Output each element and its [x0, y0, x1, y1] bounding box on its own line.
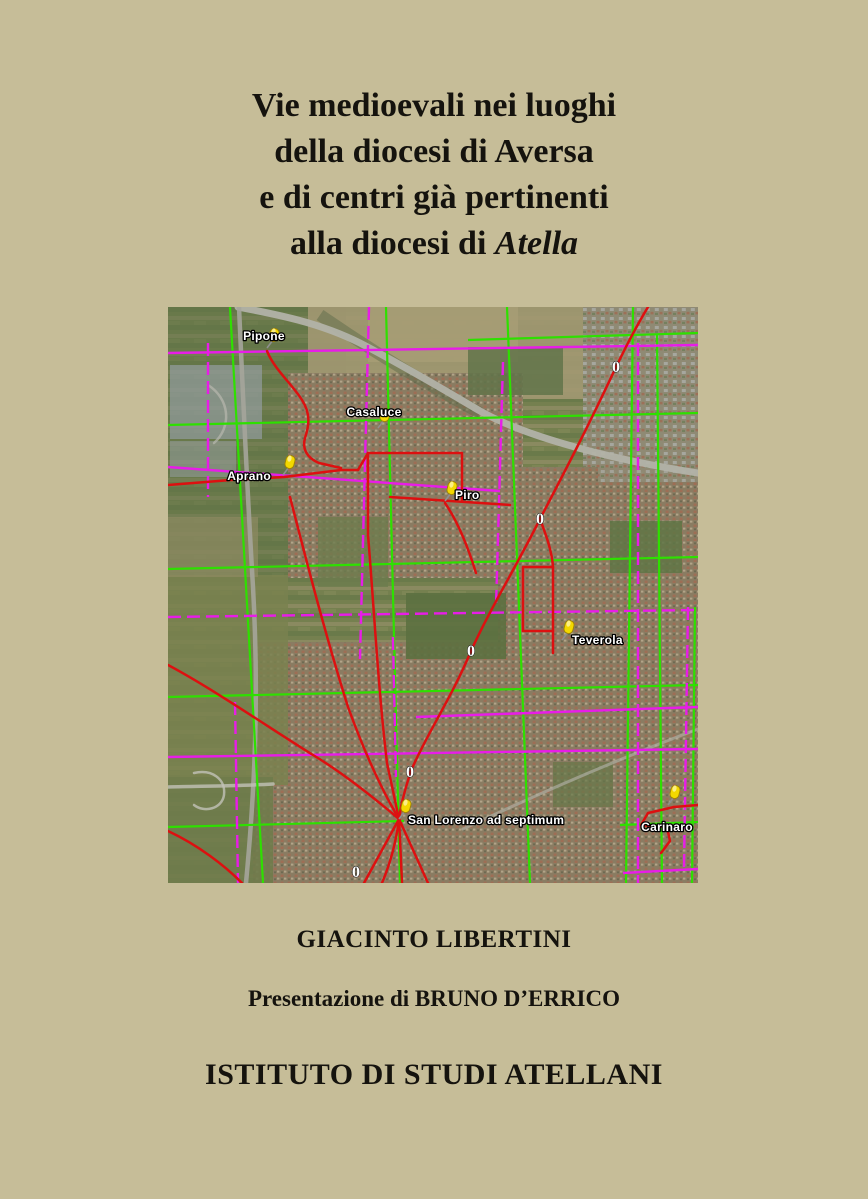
- author-name: GIACINTO LIBERTINI: [0, 926, 868, 954]
- map-pin-label: Piro: [455, 488, 480, 502]
- institute-name: ISTITUTO DI STUDI ATELLANI: [0, 1058, 868, 1092]
- title-line-3: e di centri già pertinenti: [0, 175, 868, 221]
- book-cover-page: Vie medioevali nei luoghi della diocesi …: [0, 0, 868, 1199]
- zero-distance-marker: 0: [467, 643, 475, 660]
- zero-distance-marker: 0: [406, 764, 414, 781]
- map-pin-label: Pipone: [243, 329, 285, 343]
- map-image: 00000 PiponeCasaluceApranoPiroTeverolaSa…: [168, 307, 698, 883]
- map-pin-label: Aprano: [227, 469, 271, 483]
- zero-distance-marker: 0: [612, 359, 620, 376]
- map-pin-label: San Lorenzo ad septimum: [408, 813, 564, 827]
- title-line-1: Vie medioevali nei luoghi: [0, 83, 868, 129]
- zero-distance-marker: 0: [536, 511, 544, 528]
- map-pin-label: Carinaro: [641, 820, 693, 834]
- title-line-2: della diocesi di Aversa: [0, 129, 868, 175]
- title-line-4-prefix: alla diocesi di: [290, 225, 495, 262]
- presentation-credit: Presentazione di BRUNO D’ERRICO: [0, 986, 868, 1012]
- satellite-map: 00000 PiponeCasaluceApranoPiroTeverolaSa…: [168, 307, 698, 883]
- title-atella-italic: Atella: [495, 225, 578, 262]
- zero-distance-marker: 0: [352, 864, 360, 881]
- map-pin-label: Teverola: [572, 633, 623, 647]
- book-title: Vie medioevali nei luoghi della diocesi …: [0, 83, 868, 267]
- title-line-4: alla diocesi di Atella: [0, 221, 868, 267]
- map-pin-label: Casaluce: [346, 405, 401, 419]
